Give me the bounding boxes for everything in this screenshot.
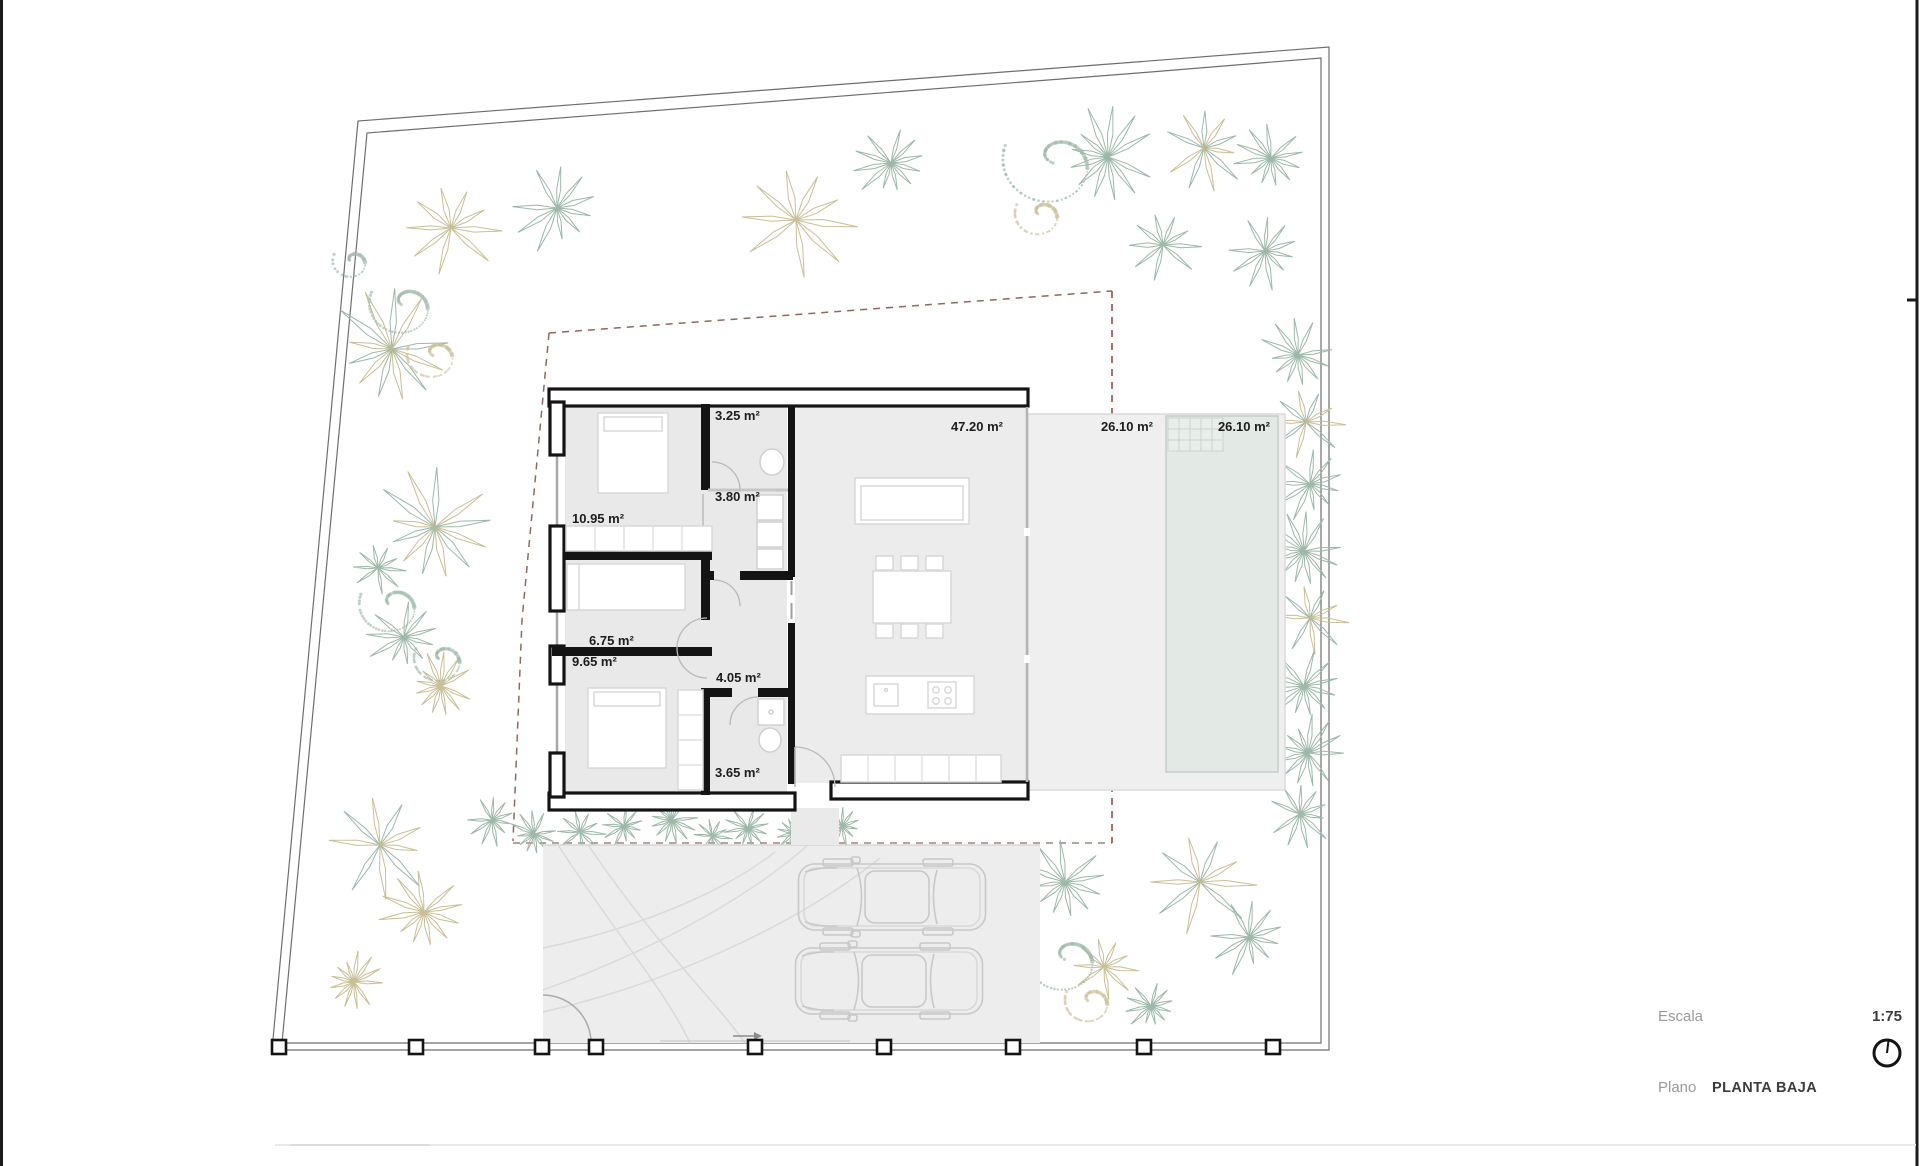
palm-frond xyxy=(1304,547,1341,551)
scrub-speck xyxy=(1080,150,1084,154)
area-label-bathroom-1: 3.25 m² xyxy=(715,408,760,423)
scrub-speck xyxy=(410,330,412,332)
scrub-speck xyxy=(1083,156,1087,160)
washer xyxy=(757,495,783,520)
scrub-speck xyxy=(425,317,427,319)
palm-frond xyxy=(1272,355,1298,358)
scrub-speck xyxy=(1046,231,1048,233)
scrub-speck xyxy=(1086,174,1088,176)
scrub-speck xyxy=(372,317,375,320)
scrub-speck xyxy=(1059,140,1063,144)
sofa-seat xyxy=(861,486,963,520)
scrub-speck xyxy=(381,629,384,632)
scrub-speck xyxy=(394,591,398,595)
palm-frond xyxy=(1163,244,1202,248)
scrub-speck xyxy=(436,680,438,682)
scrub-speck xyxy=(421,296,425,300)
scrub-speck xyxy=(1051,161,1054,164)
scrub-speck xyxy=(397,298,400,301)
scrub-speck xyxy=(390,630,392,632)
scrub-speck xyxy=(1061,945,1065,949)
scrub-speck xyxy=(428,376,430,378)
palm-frond xyxy=(1189,148,1204,188)
scrub-speck xyxy=(443,679,445,681)
scrub-speck xyxy=(369,624,372,627)
wall-west-1 xyxy=(550,402,564,455)
scrub-speck xyxy=(1046,158,1049,161)
shower-drain xyxy=(769,710,773,714)
palm-frond xyxy=(1265,217,1268,251)
scrub-speck xyxy=(369,294,372,297)
scrub-speck xyxy=(399,591,403,595)
palm-frond xyxy=(1129,243,1163,248)
scrub-speck xyxy=(1051,200,1053,202)
area-label-living-kitchen: 47.20 m² xyxy=(951,419,1004,434)
palm-frond xyxy=(1287,355,1298,382)
palm-frond xyxy=(796,220,858,227)
palm-tree xyxy=(853,130,922,190)
scrub-speck xyxy=(406,358,409,361)
palm-frond xyxy=(750,220,796,252)
palm-frond xyxy=(383,896,425,912)
scrub-speck xyxy=(427,312,429,314)
scrub-speck xyxy=(1043,154,1046,157)
palm-frond xyxy=(1234,158,1272,164)
palm-frond xyxy=(796,200,838,220)
scrub-speck xyxy=(1061,989,1063,991)
palm-frond xyxy=(557,831,580,833)
scrub-speck xyxy=(1003,168,1006,171)
plano-value: PLANTA BAJA xyxy=(1712,1080,1817,1096)
palm-frond xyxy=(1249,901,1252,937)
scrub-speck xyxy=(363,617,366,620)
scrub-speck xyxy=(1015,220,1018,223)
toilet-1 xyxy=(760,449,784,475)
palm-frond xyxy=(1262,158,1271,183)
scrub-speck xyxy=(379,324,382,327)
scrub-speck xyxy=(370,291,373,294)
scrub-speck xyxy=(441,679,443,681)
scrub-speck xyxy=(413,328,415,330)
scrub-speck xyxy=(1091,966,1093,968)
scrub-speck xyxy=(413,653,416,656)
dining-table xyxy=(873,571,951,623)
palm-tree xyxy=(353,545,406,594)
palm-frond xyxy=(1127,998,1151,1006)
scrub-speck xyxy=(457,656,461,660)
scrub-speck xyxy=(437,657,440,660)
area-label-bedroom-2: 9.65 m² xyxy=(572,654,617,669)
palm-frond xyxy=(1104,967,1139,971)
scrub-speck xyxy=(1028,196,1031,199)
floor-plan-canvas: 3.25 m²3.80 m²10.95 m²6.75 m²9.65 m²4.05… xyxy=(0,0,1920,1166)
scrub-speck xyxy=(1035,233,1037,235)
palm-frond xyxy=(1053,882,1065,913)
scrub-speck xyxy=(362,258,366,262)
scrub-speck xyxy=(1087,1020,1089,1022)
palm-frond xyxy=(451,228,489,261)
palm-frond xyxy=(380,827,421,845)
scrub-speck xyxy=(1050,987,1053,990)
scrub-speck xyxy=(1073,1016,1076,1019)
palm-frond xyxy=(786,171,796,220)
palm-tree xyxy=(513,167,594,252)
palm-frond xyxy=(1189,838,1200,882)
palm-frond xyxy=(1088,108,1108,157)
drawing-sheet: 3.25 m²3.80 m²10.95 m²6.75 m²9.65 m²4.05… xyxy=(0,0,1920,1166)
palm-frond xyxy=(467,819,492,822)
palm-frond xyxy=(1167,132,1204,148)
scrub-speck xyxy=(431,344,435,348)
scrub-speck xyxy=(1069,195,1071,197)
scrub-speck xyxy=(388,330,391,333)
palm-frond xyxy=(1232,937,1249,975)
palm-tree xyxy=(1279,714,1344,786)
scrub-speck xyxy=(1085,1020,1087,1022)
scrub-speck xyxy=(359,609,362,612)
scrub-speck xyxy=(1072,193,1074,195)
fence-post xyxy=(1137,1040,1151,1054)
entry-porch xyxy=(791,808,839,845)
palm-frond xyxy=(518,208,557,232)
palm-frond xyxy=(1265,251,1272,290)
scrub-speck xyxy=(412,616,414,618)
scrub-speck xyxy=(1083,981,1085,983)
scrub-speck xyxy=(368,305,371,308)
scrub-speck xyxy=(435,375,437,377)
wall-west-2 xyxy=(550,526,564,611)
palm-frond xyxy=(1098,939,1104,967)
scrub-speck xyxy=(1081,184,1083,186)
chair xyxy=(876,624,893,638)
scrub-speck xyxy=(1002,149,1005,152)
scrub-speck xyxy=(385,601,388,604)
palm-frond xyxy=(1298,322,1313,355)
scrub-speck xyxy=(424,319,426,321)
scrub-speck xyxy=(1071,987,1073,989)
scrub-speck xyxy=(1055,215,1059,219)
scrub-speck xyxy=(1089,990,1093,994)
scrub-speck xyxy=(384,630,386,632)
scrub-speck xyxy=(413,658,416,661)
dressing-bed-head xyxy=(567,564,579,610)
setback-left xyxy=(513,333,549,841)
dressing-bed xyxy=(567,564,685,610)
scrub-speck xyxy=(1014,213,1017,216)
scrub-speck xyxy=(410,599,414,603)
scrub-speck xyxy=(332,253,335,256)
scrub-speck xyxy=(1096,1018,1098,1020)
palm-frond xyxy=(406,226,451,230)
scrub-speck xyxy=(350,276,352,278)
palm-frond xyxy=(366,634,404,638)
palm-frond xyxy=(557,167,561,208)
palm-frond xyxy=(451,227,502,233)
palm-frond xyxy=(1310,484,1314,510)
palm-frond xyxy=(657,820,673,836)
palm-frond xyxy=(424,912,459,923)
pool xyxy=(1166,416,1278,772)
palm-frond xyxy=(1304,686,1335,695)
scrub-speck xyxy=(375,320,378,323)
palm-frond xyxy=(1295,686,1304,713)
scrub-speck xyxy=(428,349,431,352)
scrub-speck xyxy=(1004,144,1007,147)
scrub-speck xyxy=(1102,994,1106,998)
wall-south-living xyxy=(831,782,1028,799)
palm-frond xyxy=(370,637,404,657)
palm-tree xyxy=(340,288,448,399)
scrub-speck xyxy=(1042,232,1044,234)
palm-tree xyxy=(329,798,421,900)
scrub-speck xyxy=(413,611,415,613)
scrub-bush xyxy=(1001,140,1089,203)
palm-frond xyxy=(726,820,749,828)
scrub-speck xyxy=(369,311,372,314)
palm-tree xyxy=(1125,983,1172,1024)
scrub-speck xyxy=(423,676,426,679)
chair xyxy=(876,556,893,570)
palm-frond xyxy=(1215,937,1249,958)
scrub-speck xyxy=(1078,1018,1081,1021)
palm-frond xyxy=(1135,988,1151,1007)
scrub-speck xyxy=(1073,144,1077,148)
palm-frond xyxy=(352,845,380,890)
scrub-speck xyxy=(418,293,422,297)
palm-frond xyxy=(1248,220,1265,251)
setback-top xyxy=(549,291,1112,333)
scrub-speck xyxy=(400,292,404,296)
palm-frond xyxy=(435,494,483,527)
chair xyxy=(926,624,943,638)
scrub-speck xyxy=(1096,990,1100,994)
scrub-speck xyxy=(1063,958,1066,961)
laundry-cabinet xyxy=(757,549,783,569)
palm-frond xyxy=(1187,882,1200,934)
palm-frond xyxy=(868,136,891,163)
scrub-speck xyxy=(1047,144,1051,148)
palm-frond xyxy=(1211,935,1250,939)
palm-frond xyxy=(1150,880,1200,884)
scrub-speck xyxy=(399,628,401,630)
scrub-speck xyxy=(1090,1020,1092,1022)
scrub-speck xyxy=(1068,1011,1071,1014)
scrub-speck xyxy=(417,670,420,673)
wall-south-bedrooms xyxy=(549,793,795,810)
scrub-speck xyxy=(387,594,391,598)
scrub-speck xyxy=(1024,229,1027,232)
scrub-speck xyxy=(406,624,408,626)
palm-frond xyxy=(422,527,435,574)
palm-frond xyxy=(1183,115,1204,148)
palm-frond xyxy=(796,177,818,220)
bed-1-pillow xyxy=(604,417,662,431)
palm-frond xyxy=(694,834,712,836)
scrub-speck xyxy=(433,376,435,378)
palm-frond xyxy=(891,163,920,171)
scrub-speck xyxy=(1056,220,1058,222)
scrub-speck xyxy=(358,273,360,275)
scrub-speck xyxy=(415,666,418,669)
scrub-bush xyxy=(1014,203,1060,236)
driveway xyxy=(543,845,1040,1043)
scrub-speck xyxy=(408,622,410,624)
palm-frond xyxy=(742,216,796,221)
scrub-speck xyxy=(393,630,395,632)
scrub-speck xyxy=(1014,208,1017,211)
palm-frond xyxy=(416,686,441,693)
palm-frond xyxy=(357,568,378,583)
palm-frond xyxy=(403,527,435,561)
scrub-speck xyxy=(368,308,371,311)
scrub-speck xyxy=(410,620,412,622)
scrub-speck xyxy=(1024,194,1027,197)
palm-frond xyxy=(511,824,534,834)
area-label-bedroom-1: 10.95 m² xyxy=(572,511,625,526)
scrub-speck xyxy=(382,327,385,330)
scrub-speck xyxy=(426,306,430,310)
scrub-speck xyxy=(1080,983,1082,985)
palm-tree xyxy=(1167,111,1237,192)
scrub-speck xyxy=(412,605,416,609)
palm-frond xyxy=(354,981,383,984)
scrub-speck xyxy=(407,331,409,333)
scrub-speck xyxy=(425,375,428,378)
scrub-speck xyxy=(408,290,412,294)
scrub-speck xyxy=(1104,1012,1106,1014)
scrub-speck xyxy=(336,270,339,273)
scrub-speck xyxy=(1075,942,1079,946)
palm-tree xyxy=(1229,217,1295,290)
palm-tree xyxy=(724,807,769,846)
palm-frond xyxy=(534,813,544,834)
scrub-speck xyxy=(1078,985,1080,987)
area-label-hallway: 4.05 m² xyxy=(716,670,761,685)
scrub-speck xyxy=(410,365,413,368)
wall-north xyxy=(549,389,1028,406)
toilet-2 xyxy=(759,728,781,752)
palm-frond xyxy=(413,912,424,942)
house xyxy=(549,389,1030,845)
palm-frond xyxy=(1304,587,1310,619)
scrub-speck xyxy=(426,314,428,316)
palm-frond xyxy=(1200,880,1257,886)
scrub-bush xyxy=(1064,990,1110,1023)
scrub-speck xyxy=(367,622,370,625)
palm-frond xyxy=(390,288,396,349)
scrub-speck xyxy=(1076,190,1078,192)
palm-frond xyxy=(435,527,446,576)
palm-tree xyxy=(1272,785,1326,848)
scrub-speck xyxy=(1105,1008,1107,1010)
palm-tree xyxy=(467,797,512,846)
scrub-speck xyxy=(1085,166,1089,170)
palm-frond xyxy=(1295,551,1304,582)
scrub-speck xyxy=(365,620,368,623)
scrub-speck xyxy=(1039,203,1043,207)
palm-frond xyxy=(379,349,393,396)
scrub-speck xyxy=(1065,990,1068,993)
scrub-speck xyxy=(1037,199,1040,202)
scrub-speck xyxy=(394,331,396,333)
palm-frond xyxy=(1095,157,1109,197)
palm-frond xyxy=(1204,148,1234,153)
scrub-speck xyxy=(368,301,371,304)
palm-frond xyxy=(1292,618,1310,649)
dryer xyxy=(757,522,783,547)
chair xyxy=(926,556,943,570)
palm-frond xyxy=(1297,753,1308,783)
palm-tree xyxy=(1211,901,1281,974)
scrub-speck xyxy=(425,302,429,306)
scrub-speck xyxy=(1058,949,1061,952)
scrub-speck xyxy=(1092,964,1094,966)
scrub-speck xyxy=(347,258,350,261)
scrub-speck xyxy=(1053,141,1057,145)
scrub-speck xyxy=(441,344,445,348)
palm-frond xyxy=(1202,111,1207,148)
scrub-speck xyxy=(1020,192,1023,195)
scrub-speck xyxy=(378,628,381,631)
palm-frond xyxy=(380,805,402,845)
title-block: Escala 1:75 Plano PLANTA BAJA xyxy=(1658,1008,1902,1096)
scrub-speck xyxy=(406,353,409,356)
palm-tree xyxy=(416,652,469,715)
scrub-speck xyxy=(1087,977,1089,979)
scrub-speck xyxy=(1064,943,1068,947)
scrub-speck xyxy=(361,271,363,273)
palm-frond xyxy=(378,568,407,571)
palm-frond xyxy=(1071,157,1108,167)
palm-frond xyxy=(1074,965,1105,968)
scrub-speck xyxy=(456,670,458,672)
scrub-speck xyxy=(1092,1020,1094,1022)
wardrobe-1 xyxy=(566,526,712,551)
scrub-speck xyxy=(1057,988,1059,990)
scrub-speck xyxy=(445,346,449,350)
scrub-speck xyxy=(391,330,394,333)
scrub-speck xyxy=(1070,942,1074,946)
palm-frond xyxy=(392,637,404,660)
scrub-speck xyxy=(1020,226,1023,229)
palm-frond xyxy=(1284,788,1300,814)
scrub-speck xyxy=(368,298,371,301)
chair xyxy=(901,624,918,638)
scrub-speck xyxy=(1056,200,1058,202)
palm-frond xyxy=(482,820,492,844)
scrub-speck xyxy=(1012,186,1015,189)
scrub-speck xyxy=(411,618,413,620)
palm-frond xyxy=(537,208,557,251)
scrub-speck xyxy=(372,626,375,629)
scrub-speck xyxy=(360,612,363,615)
scrub-speck xyxy=(1085,994,1088,997)
scrub-speck xyxy=(1016,189,1019,192)
palm-frond xyxy=(1079,157,1108,185)
scrub-speck xyxy=(1091,969,1093,971)
palm-frond xyxy=(1283,551,1304,573)
scrub-speck xyxy=(1035,207,1038,210)
fence-post xyxy=(1006,1040,1020,1054)
palm-frond xyxy=(1288,814,1300,845)
scrub-speck xyxy=(451,362,453,364)
scrub-speck xyxy=(400,303,403,306)
scrub-speck xyxy=(418,325,420,327)
scrub-speck xyxy=(1085,979,1087,981)
palm-frond xyxy=(401,912,424,932)
scrub-speck xyxy=(353,252,357,256)
palm-tree xyxy=(331,951,383,1009)
